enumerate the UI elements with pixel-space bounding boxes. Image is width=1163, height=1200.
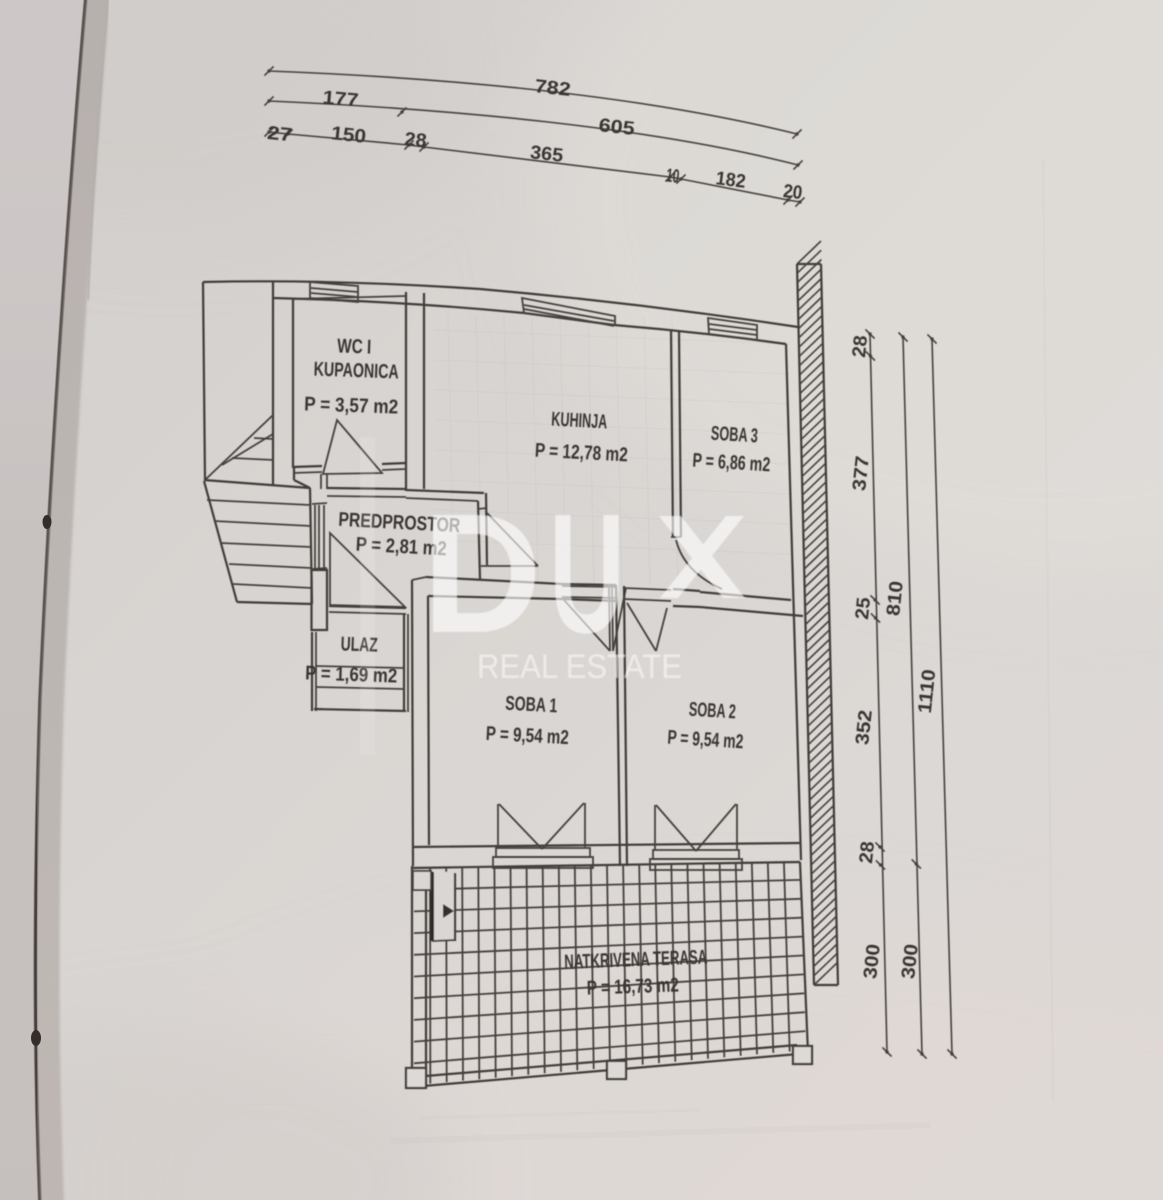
svg-text:P = 9,54 m2: P = 9,54 m2	[485, 723, 569, 749]
svg-text:300: 300	[860, 943, 885, 980]
svg-text:WC I: WC I	[337, 335, 372, 358]
svg-text:28: 28	[404, 129, 428, 152]
svg-text:782: 782	[534, 76, 572, 101]
svg-text:605: 605	[598, 115, 637, 140]
svg-text:SOBA 3: SOBA 3	[710, 423, 758, 448]
svg-text:27: 27	[266, 123, 293, 146]
svg-text:810: 810	[883, 580, 908, 617]
svg-text:28: 28	[849, 334, 872, 358]
svg-text:377: 377	[849, 455, 874, 492]
svg-text:10: 10	[665, 165, 680, 187]
svg-text:352: 352	[852, 709, 877, 746]
svg-text:300: 300	[898, 943, 923, 980]
svg-text:U: U	[549, 479, 625, 669]
svg-text:150: 150	[330, 123, 367, 148]
svg-text:25: 25	[852, 596, 875, 621]
svg-text:SOBA 1: SOBA 1	[505, 693, 558, 718]
svg-text:182: 182	[715, 168, 747, 192]
svg-text:D: D	[422, 479, 542, 669]
svg-text:20: 20	[782, 181, 803, 204]
svg-text:KUHINJA: KUHINJA	[551, 409, 608, 434]
svg-text:SOBA 2: SOBA 2	[688, 699, 736, 724]
svg-text:28: 28	[856, 840, 879, 864]
svg-text:KUPAONICA: KUPAONICA	[313, 359, 399, 384]
svg-text:177: 177	[322, 87, 360, 111]
svg-text:365: 365	[529, 142, 565, 167]
svg-text:REAL ESTATE: REAL ESTATE	[477, 648, 682, 686]
svg-text:P = 3,57 m2: P = 3,57 m2	[304, 393, 399, 418]
svg-text:P = 9,54 m2: P = 9,54 m2	[667, 727, 744, 754]
svg-text:P = 1,69 m2: P = 1,69 m2	[305, 662, 398, 687]
svg-text:P = 16,73 m2: P = 16,73 m2	[586, 974, 679, 999]
